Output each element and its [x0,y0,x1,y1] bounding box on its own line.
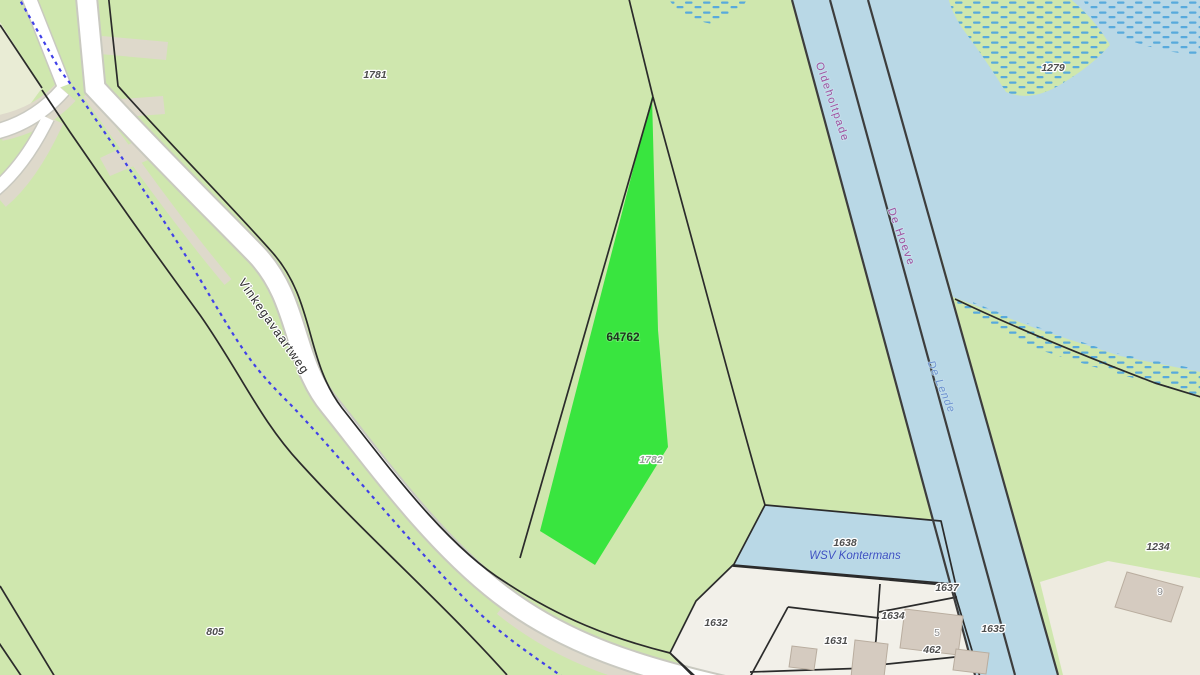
parcel-label-1638: 1638 [833,537,857,549]
parcel-label-64762: 64762 [606,330,640,344]
building-small-462 [953,649,989,674]
parcel-label-1781: 1781 [363,69,387,81]
parcel-label-805: 805 [206,626,224,638]
parcel-label-1635: 1635 [981,623,1005,635]
parcel-label-1634: 1634 [881,610,905,622]
map-viewport[interactable]: 1781 64762 1782 805 1279 1234 1638 WSV K… [0,0,1200,675]
building-small-1631 [789,646,817,670]
house-number-5: 5 [934,627,940,639]
marina-label: WSV Kontermans [809,550,901,562]
building-bottom [851,640,888,675]
house-number-9: 9 [1157,586,1163,598]
parcel-label-1632: 1632 [704,617,728,629]
parcel-label-1782: 1782 [639,454,663,466]
map-canvas[interactable]: 1781 64762 1782 805 1279 1234 1638 WSV K… [0,0,1200,675]
parcel-label-1234: 1234 [1146,541,1170,553]
parcel-label-1631: 1631 [824,635,848,647]
parcel-label-1279: 1279 [1041,62,1065,74]
parcel-label-462: 462 [922,644,941,656]
yard-bottom-right [1040,561,1200,675]
parcel-label-1637: 1637 [935,582,960,594]
